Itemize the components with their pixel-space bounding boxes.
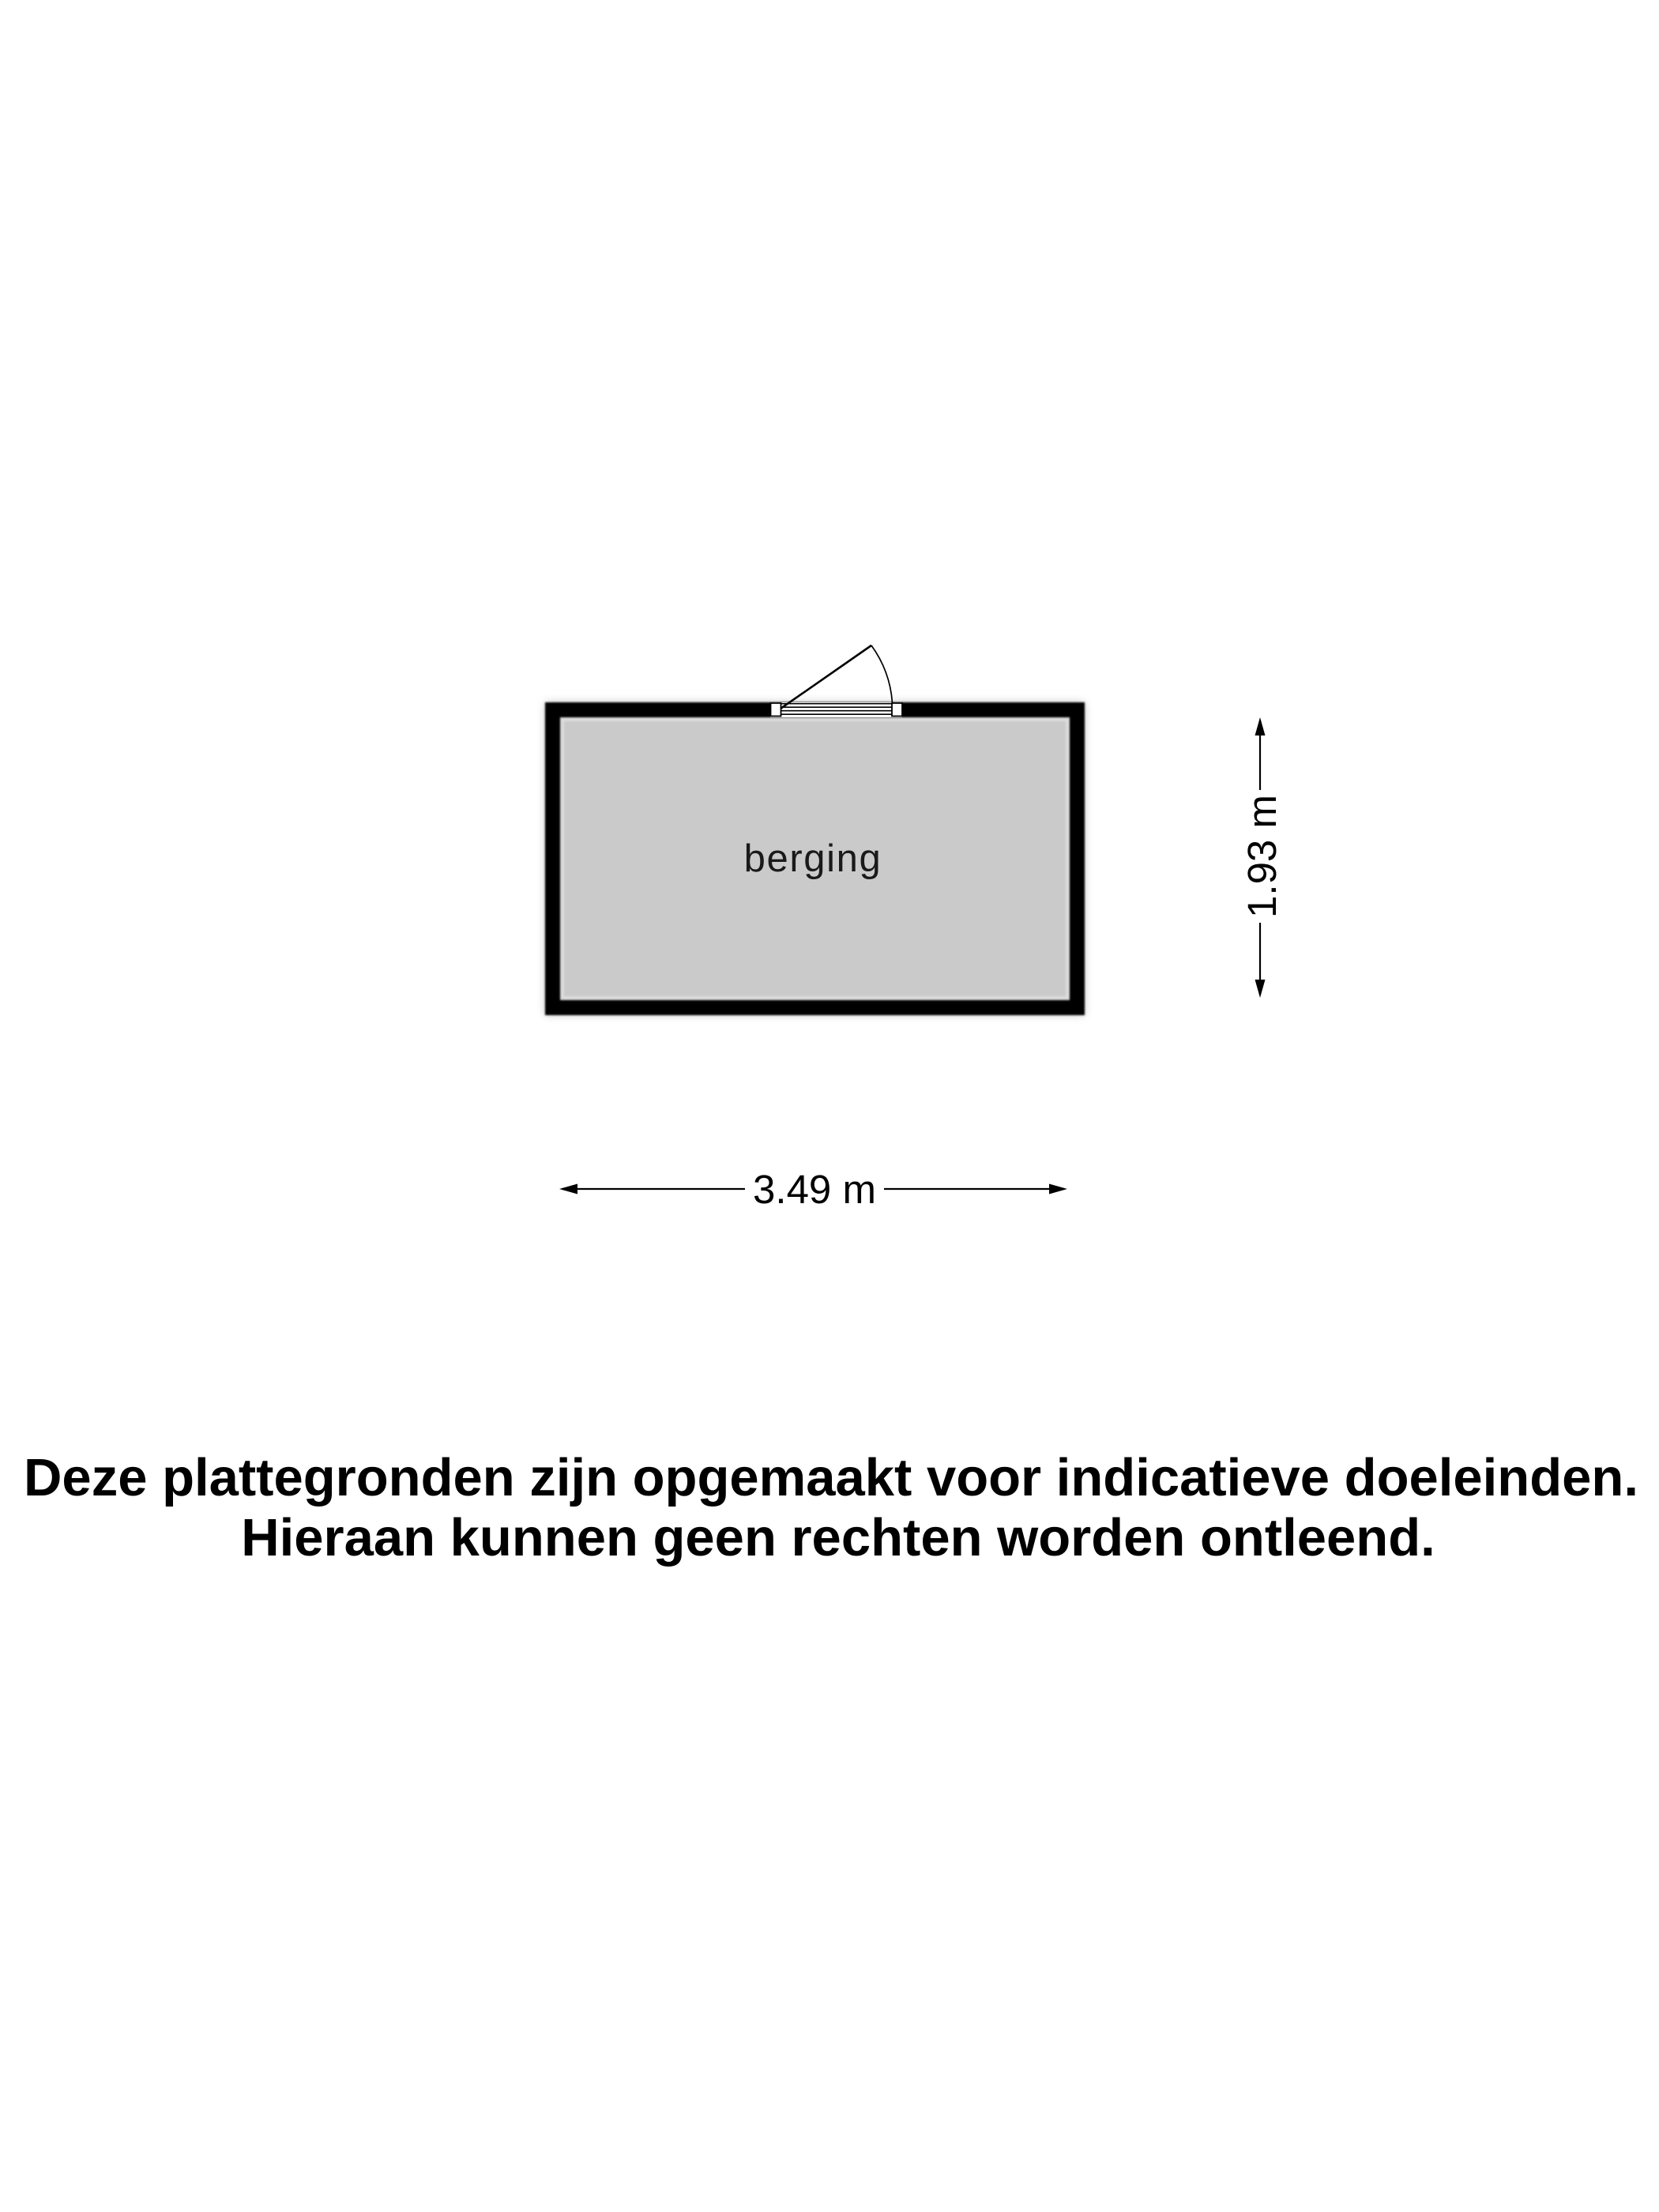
svg-text:1.93 m: 1.93 m: [1240, 795, 1285, 918]
svg-text:3.49 m: 3.49 m: [753, 1167, 876, 1212]
svg-text:berging: berging: [744, 837, 882, 880]
svg-text:Hieraan kunnen geen rechten wo: Hieraan kunnen geen rechten worden ontle…: [241, 1508, 1435, 1567]
svg-text:Deze plattegronden zijn opgema: Deze plattegronden zijn opgemaakt voor i…: [24, 1448, 1638, 1507]
